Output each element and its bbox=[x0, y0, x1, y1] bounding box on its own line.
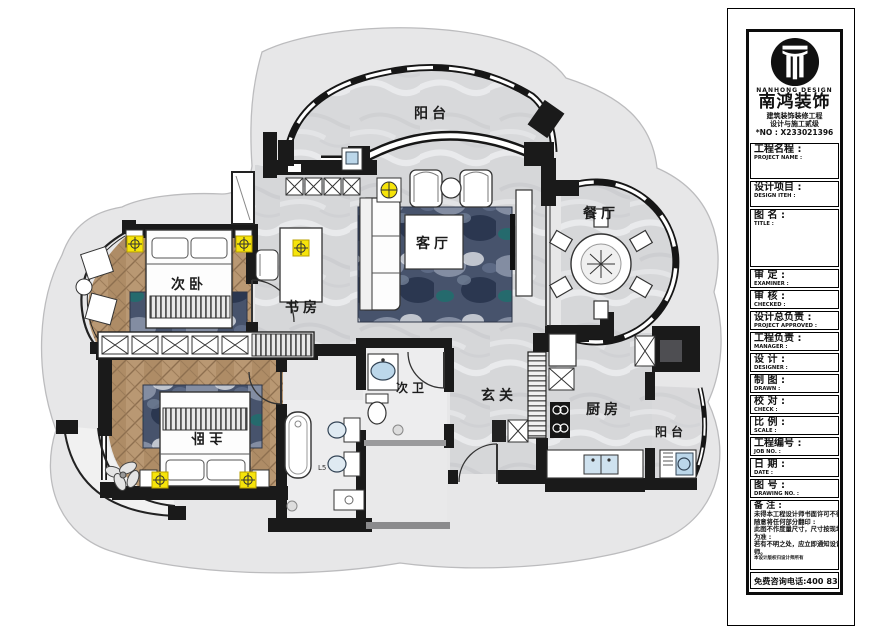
field-drawn: 制 图 : DRAWN : bbox=[750, 374, 839, 393]
light-symbol bbox=[236, 236, 252, 252]
field-en: TITLE : bbox=[754, 222, 831, 227]
company-license-no: *NO : X233021396 bbox=[750, 129, 839, 137]
field-en: CHECKED : bbox=[754, 303, 831, 308]
notes-tiny-line: 本设计版权归设计师所有 bbox=[754, 557, 835, 562]
field-cn: 工程名程 : bbox=[754, 145, 835, 156]
notes-section: 备 注 : 未得本工程设计师书面许可不得 随意将任何部分翻印 : 此图不作度量尺… bbox=[750, 500, 839, 570]
field-en: PROJECT NAME : bbox=[754, 156, 831, 161]
field-cn: 审 定 : bbox=[754, 271, 835, 282]
notes-line: 为准 : bbox=[754, 534, 835, 541]
floor-corridor bbox=[363, 443, 447, 523]
round-lamp bbox=[377, 178, 401, 202]
drawing-sheet: L5 bbox=[0, 0, 895, 633]
field-en: PROJECT APPROVED : bbox=[754, 324, 831, 329]
field-en: DRAWN : bbox=[754, 387, 831, 392]
field-check: 校 对 : CHECK : bbox=[750, 395, 839, 414]
field-cn: 图 号 : bbox=[754, 481, 835, 492]
label-balcony-rear: 阳台 bbox=[655, 424, 687, 439]
field-en: MANAGER : bbox=[754, 345, 831, 350]
company-cert-1: 建筑装饰装修工程 bbox=[750, 112, 839, 120]
field-cn: 制 图 : bbox=[754, 376, 835, 387]
field-en: DATE : bbox=[754, 471, 831, 476]
field-cn: 比 例 : bbox=[754, 418, 835, 429]
field-en: DESIGNER : bbox=[754, 366, 831, 371]
field-cn: 设 计 : bbox=[754, 355, 835, 366]
company-logo-icon bbox=[770, 37, 820, 87]
field-cn: 工程编号 : bbox=[754, 439, 835, 450]
field-en: EXAMINER : bbox=[754, 282, 831, 287]
field-scale: 比 例 : SCALE : bbox=[750, 416, 839, 435]
label-kitchen: 厨房 bbox=[586, 401, 622, 418]
field-checked: 审 核 : CHECKED : bbox=[750, 290, 839, 309]
label-study: 书房 bbox=[285, 299, 321, 316]
field-en: DRAWING NO. : bbox=[754, 492, 831, 497]
notes-line: 若有不明之处，应立即通知设计 bbox=[754, 541, 835, 548]
notes-line: 此图不作度量尺寸，尺寸按现场 bbox=[754, 526, 835, 533]
field-project-approved: 设计总负责 : PROJECT APPROVED : bbox=[750, 311, 839, 330]
field-designer: 设 计 : DESIGNER : bbox=[750, 353, 839, 372]
titleblock-frame: NANHONG DESIGN 南鸿装饰 建筑装饰装修工程 设计与施工贰级 *NO… bbox=[727, 8, 855, 626]
label-bathroom-second: 次卫 bbox=[396, 380, 428, 395]
field-en: CHECK : bbox=[754, 408, 831, 413]
washer bbox=[660, 450, 696, 478]
notes-line: 师。 bbox=[754, 549, 835, 556]
label-foyer: 玄关 bbox=[481, 387, 517, 404]
field-cn: 审 核 : bbox=[754, 292, 835, 303]
field-cn: 图 名 : bbox=[754, 211, 835, 222]
titleblock: NANHONG DESIGN 南鸿装饰 建筑装饰装修工程 设计与施工贰级 *NO… bbox=[746, 29, 843, 595]
field-date: 日 期 : DATE : bbox=[750, 458, 839, 477]
label-living-room: 客厅 bbox=[415, 235, 452, 252]
field-en: JOB NO. : bbox=[754, 450, 831, 455]
field-design-item: 设计项目 : DESIGN ITEH : bbox=[750, 181, 839, 207]
light-symbol bbox=[240, 472, 256, 488]
label-bedroom-second: 次卧 bbox=[171, 276, 207, 293]
hotline-phone: 免费咨询电话:400 8383 168 bbox=[754, 577, 839, 586]
field-cn: 设计总负责 : bbox=[754, 313, 835, 324]
field-cn: 校 对 : bbox=[754, 397, 835, 408]
company-name-cn: 南鸿装饰 bbox=[750, 94, 839, 112]
field-cn: 工程负责 : bbox=[754, 334, 835, 345]
field-project-name: 工程名程 : PROJECT NAME : bbox=[750, 143, 839, 179]
fixture-label: L5 bbox=[318, 464, 326, 472]
field-job-no: 工程编号 : JOB NO. : bbox=[750, 437, 839, 456]
kitchen-sliding-door bbox=[528, 352, 546, 438]
field-cn: 日 期 : bbox=[754, 460, 835, 471]
notes-line: 未得本工程设计师书面许可不得 bbox=[754, 511, 835, 518]
label-balcony-top: 阳台 bbox=[414, 105, 450, 122]
field-en: DESIGN ITEH : bbox=[754, 194, 831, 199]
hotline-row: 免费咨询电话:400 8383 168 bbox=[750, 572, 839, 589]
field-en: SCALE : bbox=[754, 429, 831, 434]
field-title: 图 名 : TITLE : bbox=[750, 209, 839, 267]
field-examiner: 审 定 : EXAMINER : bbox=[750, 269, 839, 288]
floor-plan-area: L5 bbox=[0, 0, 727, 633]
column-flue bbox=[232, 172, 254, 224]
logo-section: NANHONG DESIGN 南鸿装饰 建筑装饰装修工程 设计与施工贰级 *NO… bbox=[750, 33, 839, 141]
field-manager: 工程负责 : MANAGER : bbox=[750, 332, 839, 351]
light-symbol bbox=[127, 236, 143, 252]
light-symbol bbox=[293, 240, 309, 256]
label-bedroom-master: 主卧 bbox=[187, 429, 223, 446]
light-symbol bbox=[152, 472, 168, 488]
floor-plan-svg: L5 bbox=[0, 0, 727, 633]
label-dining-room: 餐厅 bbox=[582, 205, 619, 222]
field-drawing-no: 图 号 : DRAWING NO. : bbox=[750, 479, 839, 498]
company-cert-2: 设计与施工贰级 bbox=[750, 120, 839, 128]
field-cn: 设计项目 : bbox=[754, 183, 835, 194]
